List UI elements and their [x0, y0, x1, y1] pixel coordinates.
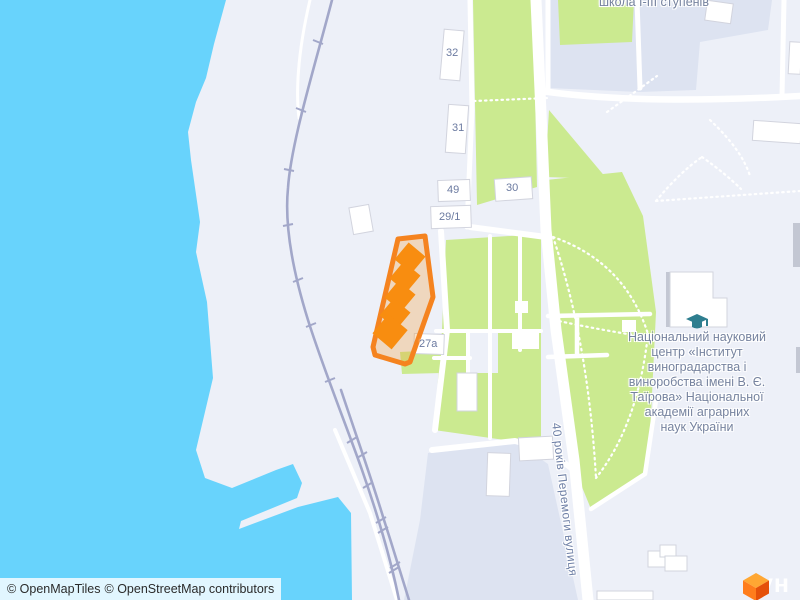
road-minor: [470, 227, 546, 237]
building-small: [349, 204, 373, 234]
attribution-osm-link[interactable]: © OpenStreetMap contributors: [105, 582, 275, 596]
lun-cube-icon: [742, 572, 770, 600]
park-plaza: [512, 329, 539, 349]
building-industrial: [518, 436, 553, 461]
park-clearing: [468, 333, 498, 373]
road-school: [541, 91, 800, 100]
attribution-openmaptiles-link[interactable]: © OpenMapTiles: [7, 582, 101, 596]
map-attribution: © OpenMapTiles © OpenStreetMap contribut…: [0, 578, 281, 600]
map-tiles: [0, 0, 800, 600]
building-edge: [752, 120, 800, 143]
building-32: [440, 29, 464, 81]
green-triangle: [545, 110, 607, 179]
building-49: [438, 179, 471, 201]
road-minor: [782, 0, 784, 96]
building-29-1: [431, 205, 472, 228]
building-industrial: [486, 453, 510, 497]
building-cluster-south: [597, 545, 687, 600]
park-plaza: [622, 320, 636, 332]
building-30: [494, 177, 532, 202]
footpath-dotted: [656, 157, 800, 201]
building-school: [705, 0, 734, 23]
water-area: [0, 0, 352, 600]
building-gray: [793, 223, 800, 267]
building-edge: [788, 42, 800, 75]
lun-logo[interactable]: лун: [742, 572, 790, 597]
park-plaza: [515, 301, 528, 313]
building-gray: [796, 347, 800, 373]
green-strip-north: [473, 0, 537, 205]
building-31: [445, 104, 468, 153]
map-canvas[interactable]: школа І-ІІІ ступенів Національний науков…: [0, 0, 800, 600]
green-school-patch: [558, 0, 634, 45]
building-park: [457, 373, 477, 411]
